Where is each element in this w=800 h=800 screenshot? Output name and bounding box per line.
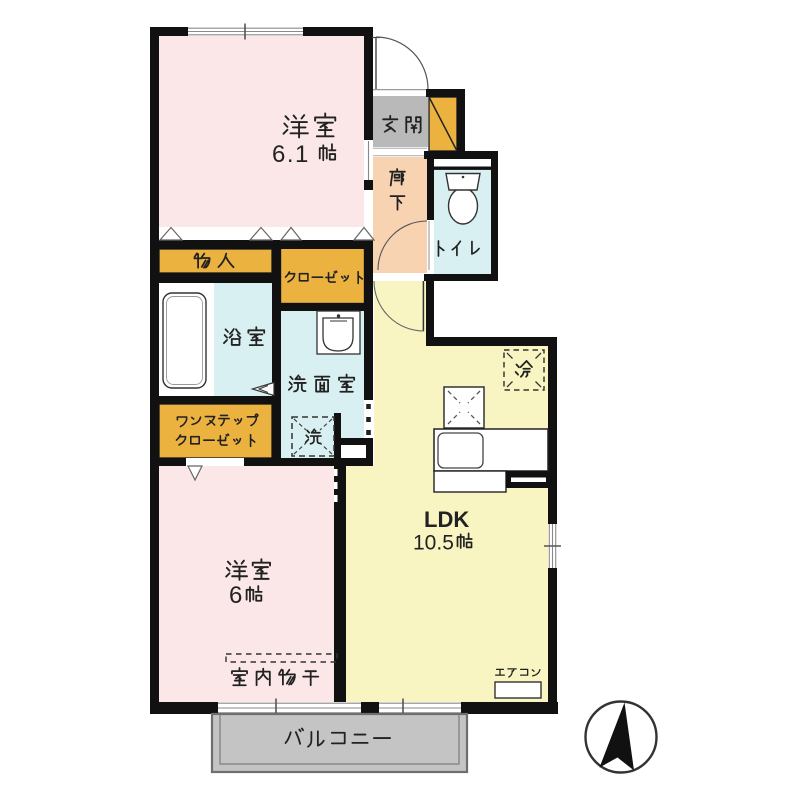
svg-text:LDK: LDK (424, 507, 469, 532)
svg-text:6: 6 (229, 582, 242, 609)
svg-text:6.1: 6.1 (272, 141, 310, 168)
svg-text:10.5: 10.5 (413, 532, 454, 555)
